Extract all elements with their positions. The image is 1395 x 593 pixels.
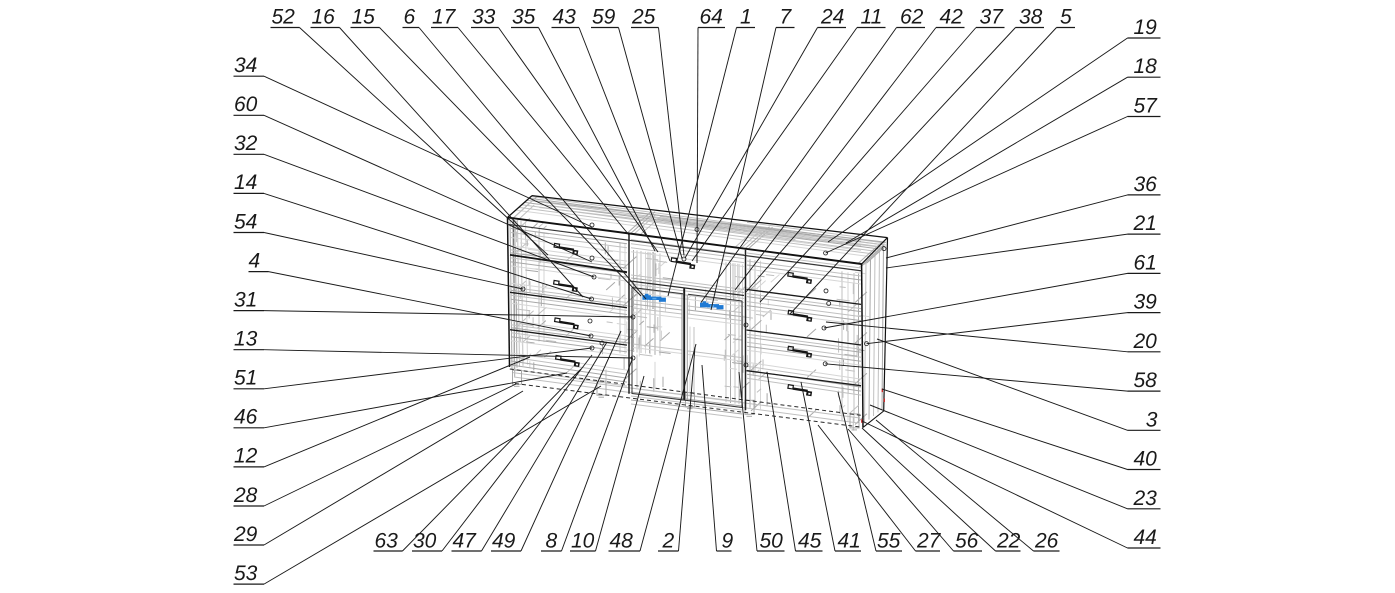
svg-text:24: 24 (820, 6, 844, 29)
svg-text:38: 38 (1019, 6, 1043, 29)
svg-text:47: 47 (453, 530, 478, 553)
svg-text:37: 37 (980, 6, 1005, 29)
svg-text:9: 9 (722, 530, 734, 553)
svg-text:32: 32 (234, 132, 258, 155)
svg-text:57: 57 (1134, 95, 1159, 118)
svg-text:18: 18 (1134, 55, 1158, 78)
svg-text:20: 20 (1133, 330, 1158, 353)
svg-text:22: 22 (996, 530, 1021, 553)
svg-text:14: 14 (234, 171, 257, 194)
svg-text:44: 44 (1134, 526, 1157, 549)
svg-text:23: 23 (1133, 487, 1158, 510)
svg-text:64: 64 (700, 6, 723, 29)
svg-text:29: 29 (233, 523, 258, 546)
svg-text:54: 54 (234, 210, 257, 233)
svg-text:8: 8 (546, 530, 558, 553)
svg-text:21: 21 (1133, 212, 1157, 235)
svg-text:45: 45 (798, 530, 822, 553)
svg-text:13: 13 (234, 328, 258, 351)
svg-text:53: 53 (234, 562, 258, 585)
svg-text:63: 63 (375, 530, 399, 553)
svg-text:2: 2 (662, 530, 675, 553)
svg-text:4: 4 (249, 249, 261, 272)
svg-text:58: 58 (1134, 369, 1158, 392)
svg-text:33: 33 (472, 6, 496, 29)
svg-text:10: 10 (571, 530, 595, 553)
svg-text:51: 51 (234, 367, 257, 390)
svg-text:60: 60 (234, 93, 258, 116)
svg-text:3: 3 (1146, 408, 1158, 431)
svg-text:50: 50 (760, 530, 784, 553)
svg-text:30: 30 (413, 530, 437, 553)
svg-text:62: 62 (900, 6, 924, 29)
svg-text:1: 1 (740, 6, 752, 29)
svg-text:19: 19 (1134, 16, 1158, 39)
svg-text:34: 34 (234, 54, 257, 77)
svg-text:36: 36 (1134, 173, 1158, 196)
svg-text:48: 48 (610, 530, 634, 553)
svg-text:56: 56 (955, 530, 979, 553)
svg-text:52: 52 (272, 6, 296, 29)
svg-text:43: 43 (553, 6, 577, 29)
svg-text:7: 7 (780, 6, 793, 29)
svg-text:31: 31 (234, 288, 257, 311)
svg-text:40: 40 (1134, 448, 1158, 471)
svg-text:25: 25 (631, 6, 656, 29)
svg-text:35: 35 (512, 6, 536, 29)
svg-text:16: 16 (312, 6, 336, 29)
svg-text:46: 46 (234, 406, 258, 429)
svg-text:61: 61 (1134, 251, 1157, 274)
svg-text:42: 42 (940, 6, 964, 29)
svg-text:28: 28 (233, 484, 258, 507)
svg-text:39: 39 (1134, 291, 1158, 314)
svg-text:55: 55 (877, 530, 901, 553)
svg-text:49: 49 (492, 530, 516, 553)
svg-text:5: 5 (1060, 6, 1072, 29)
svg-text:26: 26 (1034, 530, 1059, 553)
svg-text:15: 15 (352, 6, 376, 29)
svg-text:11: 11 (861, 6, 883, 29)
svg-text:12: 12 (234, 445, 258, 468)
svg-text:41: 41 (838, 530, 861, 553)
svg-text:59: 59 (592, 6, 616, 29)
svg-text:6: 6 (404, 6, 416, 29)
svg-text:17: 17 (432, 6, 457, 29)
